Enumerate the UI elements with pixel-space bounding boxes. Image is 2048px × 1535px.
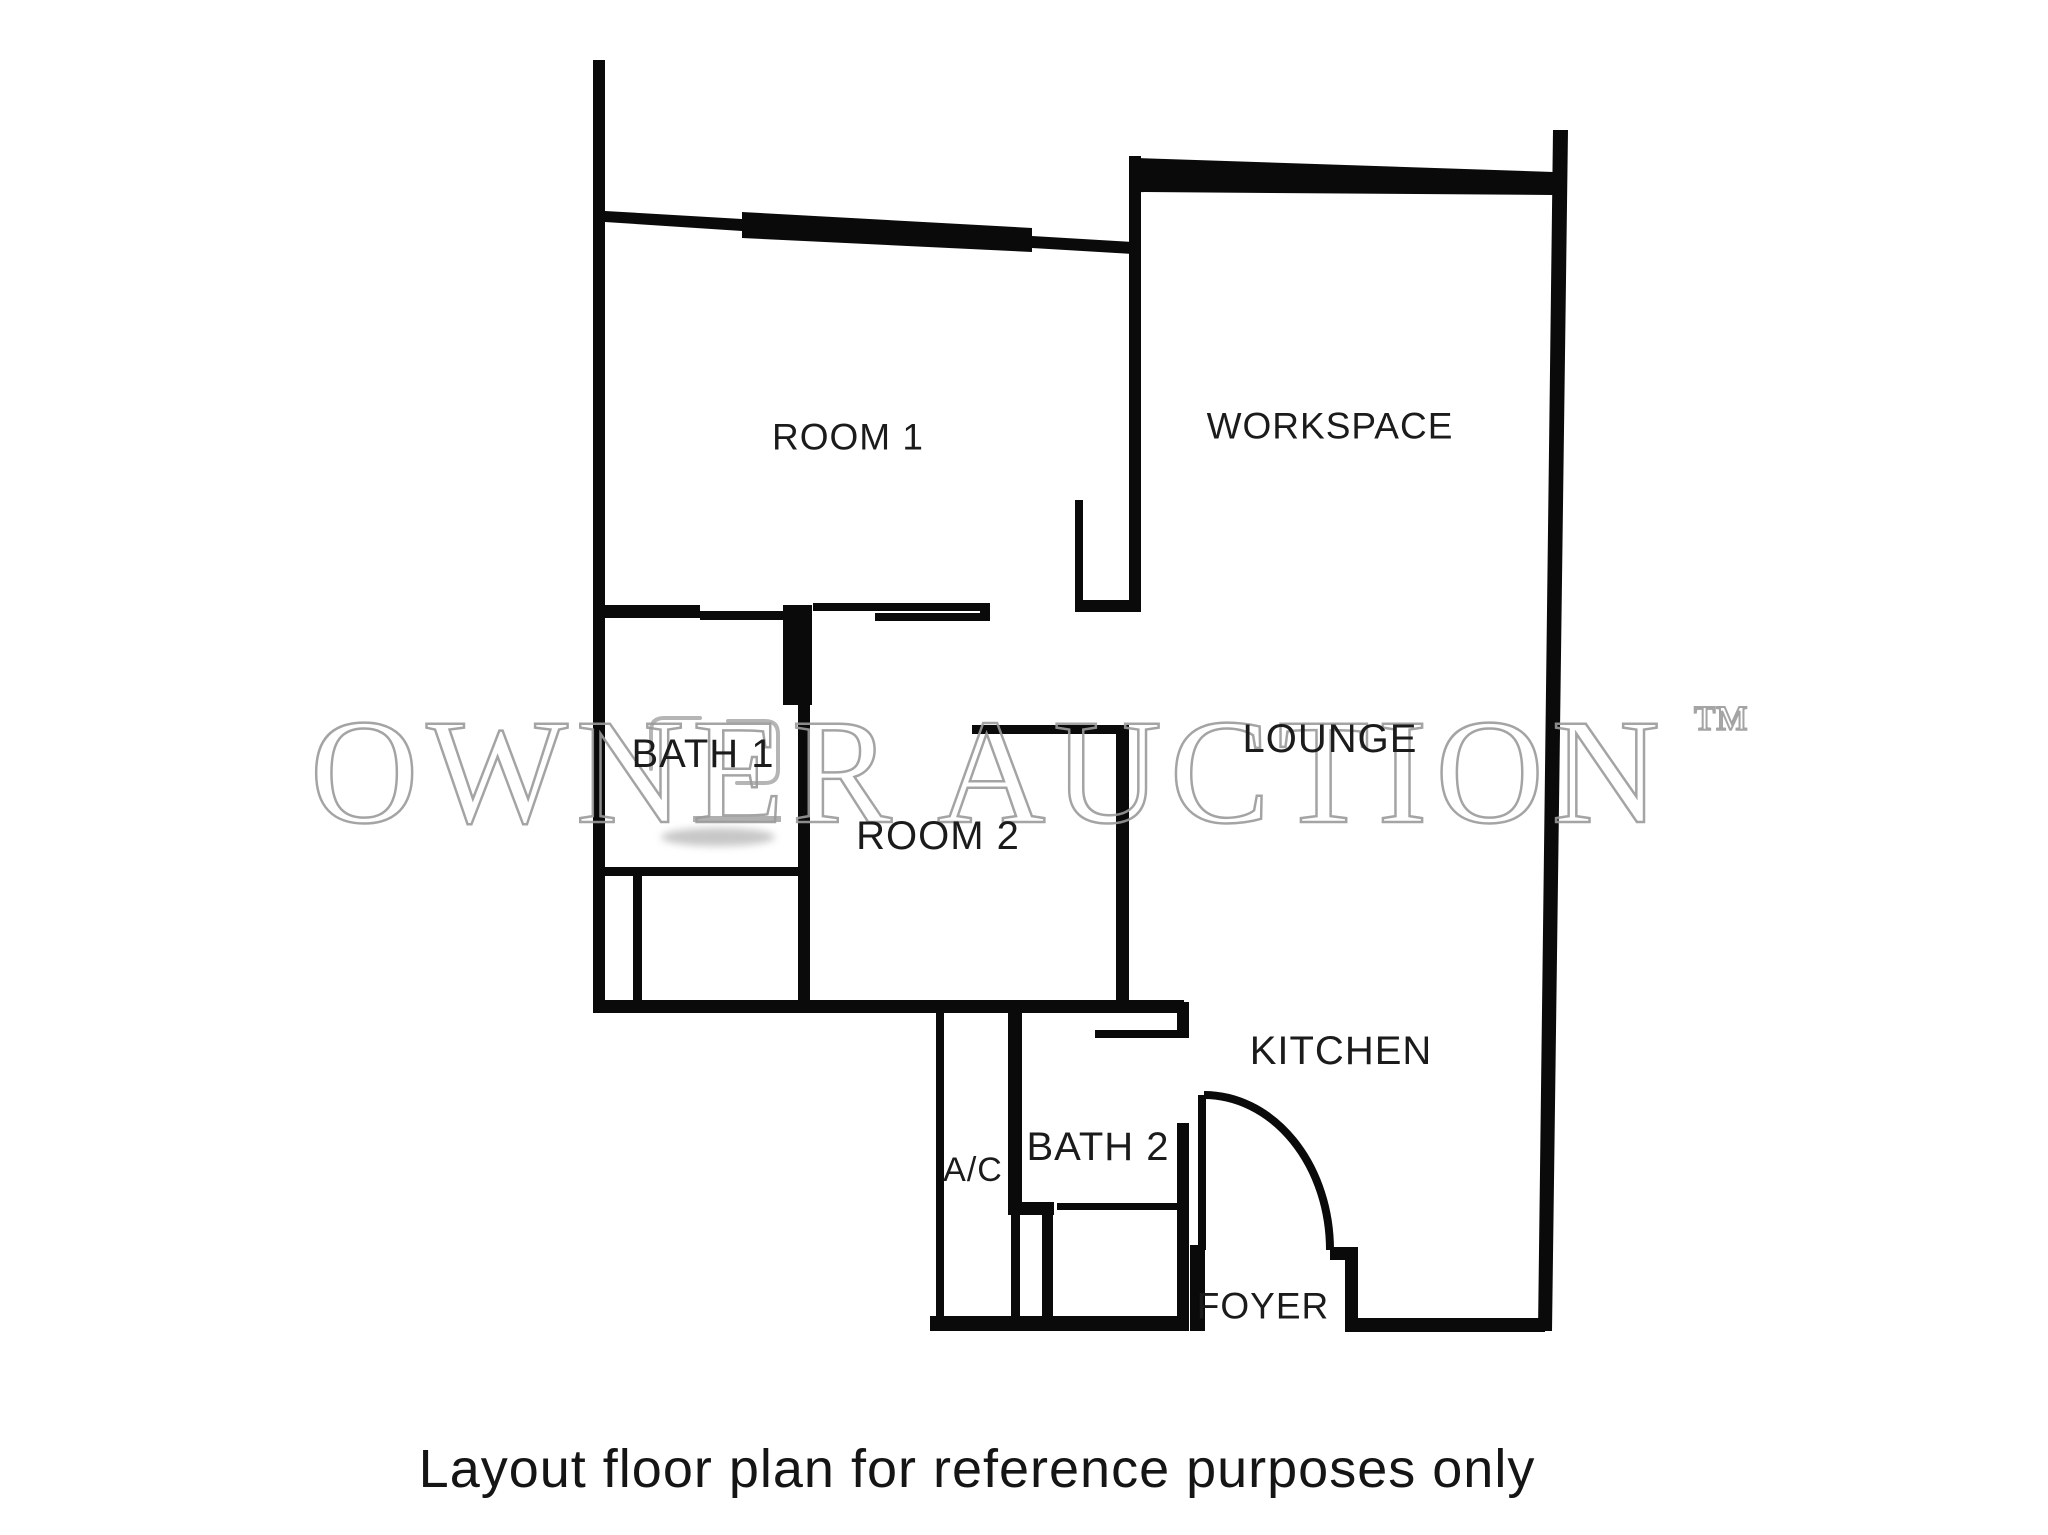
room-label-bath1: BATH 1 (631, 732, 774, 776)
entry-door-leaf (1198, 1095, 1206, 1250)
room2-top-wall-cap (980, 603, 990, 621)
floor-plan-page: OWNER AUCTION ™ ROOM 1 WORKSPACE BATH 1 … (0, 0, 2048, 1535)
room2-top-wall-lower (875, 613, 987, 621)
room-label-foyer: FOYER (1197, 1286, 1329, 1327)
mid-horizontal-wall (593, 1000, 1184, 1013)
storeroom-left-wall (1042, 1215, 1053, 1316)
room-label-workspace: WORKSPACE (1207, 406, 1454, 447)
entry-right-jamb (1345, 1247, 1358, 1332)
left-wall (593, 60, 605, 1013)
bath1-closet-wall (633, 876, 642, 1000)
bath2-right-wall-upper (1177, 1002, 1189, 1038)
bottom-wall-left (930, 1316, 1188, 1331)
room-label-bath2: BATH 2 (1026, 1125, 1169, 1169)
floor-plan-svg: OWNER AUCTION ™ ROOM 1 WORKSPACE BATH 1 … (0, 0, 2048, 1535)
room2-top-wall-upper (813, 603, 990, 611)
entry-door-arc (1204, 1095, 1330, 1250)
room1-bottom-wall (600, 605, 700, 618)
ac-right-lower-wall (1011, 1215, 1020, 1316)
room-label-room1: ROOM 1 (772, 417, 924, 458)
bath1-bottom-wall (605, 867, 798, 876)
bath2-left-wall (1008, 1013, 1022, 1203)
workspace-top-wall (1135, 158, 1553, 195)
room1-top-wall-seg2 (742, 212, 1032, 252)
bath2-bottom-line (1057, 1203, 1180, 1210)
watermark-trademark: ™ (1692, 693, 1751, 758)
room1-top-wall-seg1 (605, 211, 742, 231)
room-label-ac: A/C (943, 1151, 1003, 1189)
bath2-right-wall-lower (1177, 1123, 1189, 1331)
room-labels-group: ROOM 1 WORKSPACE BATH 1 ROOM 2 LOUNGE KI… (631, 406, 1453, 1327)
room1-top-wall-seg3 (1032, 236, 1133, 254)
divider-return-stub (1075, 600, 1141, 612)
room-label-room2: ROOM 2 (856, 814, 1020, 858)
bottom-wall-right (1345, 1318, 1545, 1332)
room1-workspace-divider (1129, 156, 1141, 612)
room-label-lounge: LOUNGE (1243, 717, 1418, 761)
bath2-door-leaf (1095, 1030, 1178, 1038)
room-label-kitchen: KITCHEN (1250, 1029, 1433, 1073)
bath1-door-leaf (700, 611, 787, 620)
divider-return-tick (1075, 500, 1083, 604)
caption: Layout floor plan for reference purposes… (419, 1439, 1536, 1499)
storeroom-top-wall (1008, 1202, 1054, 1215)
